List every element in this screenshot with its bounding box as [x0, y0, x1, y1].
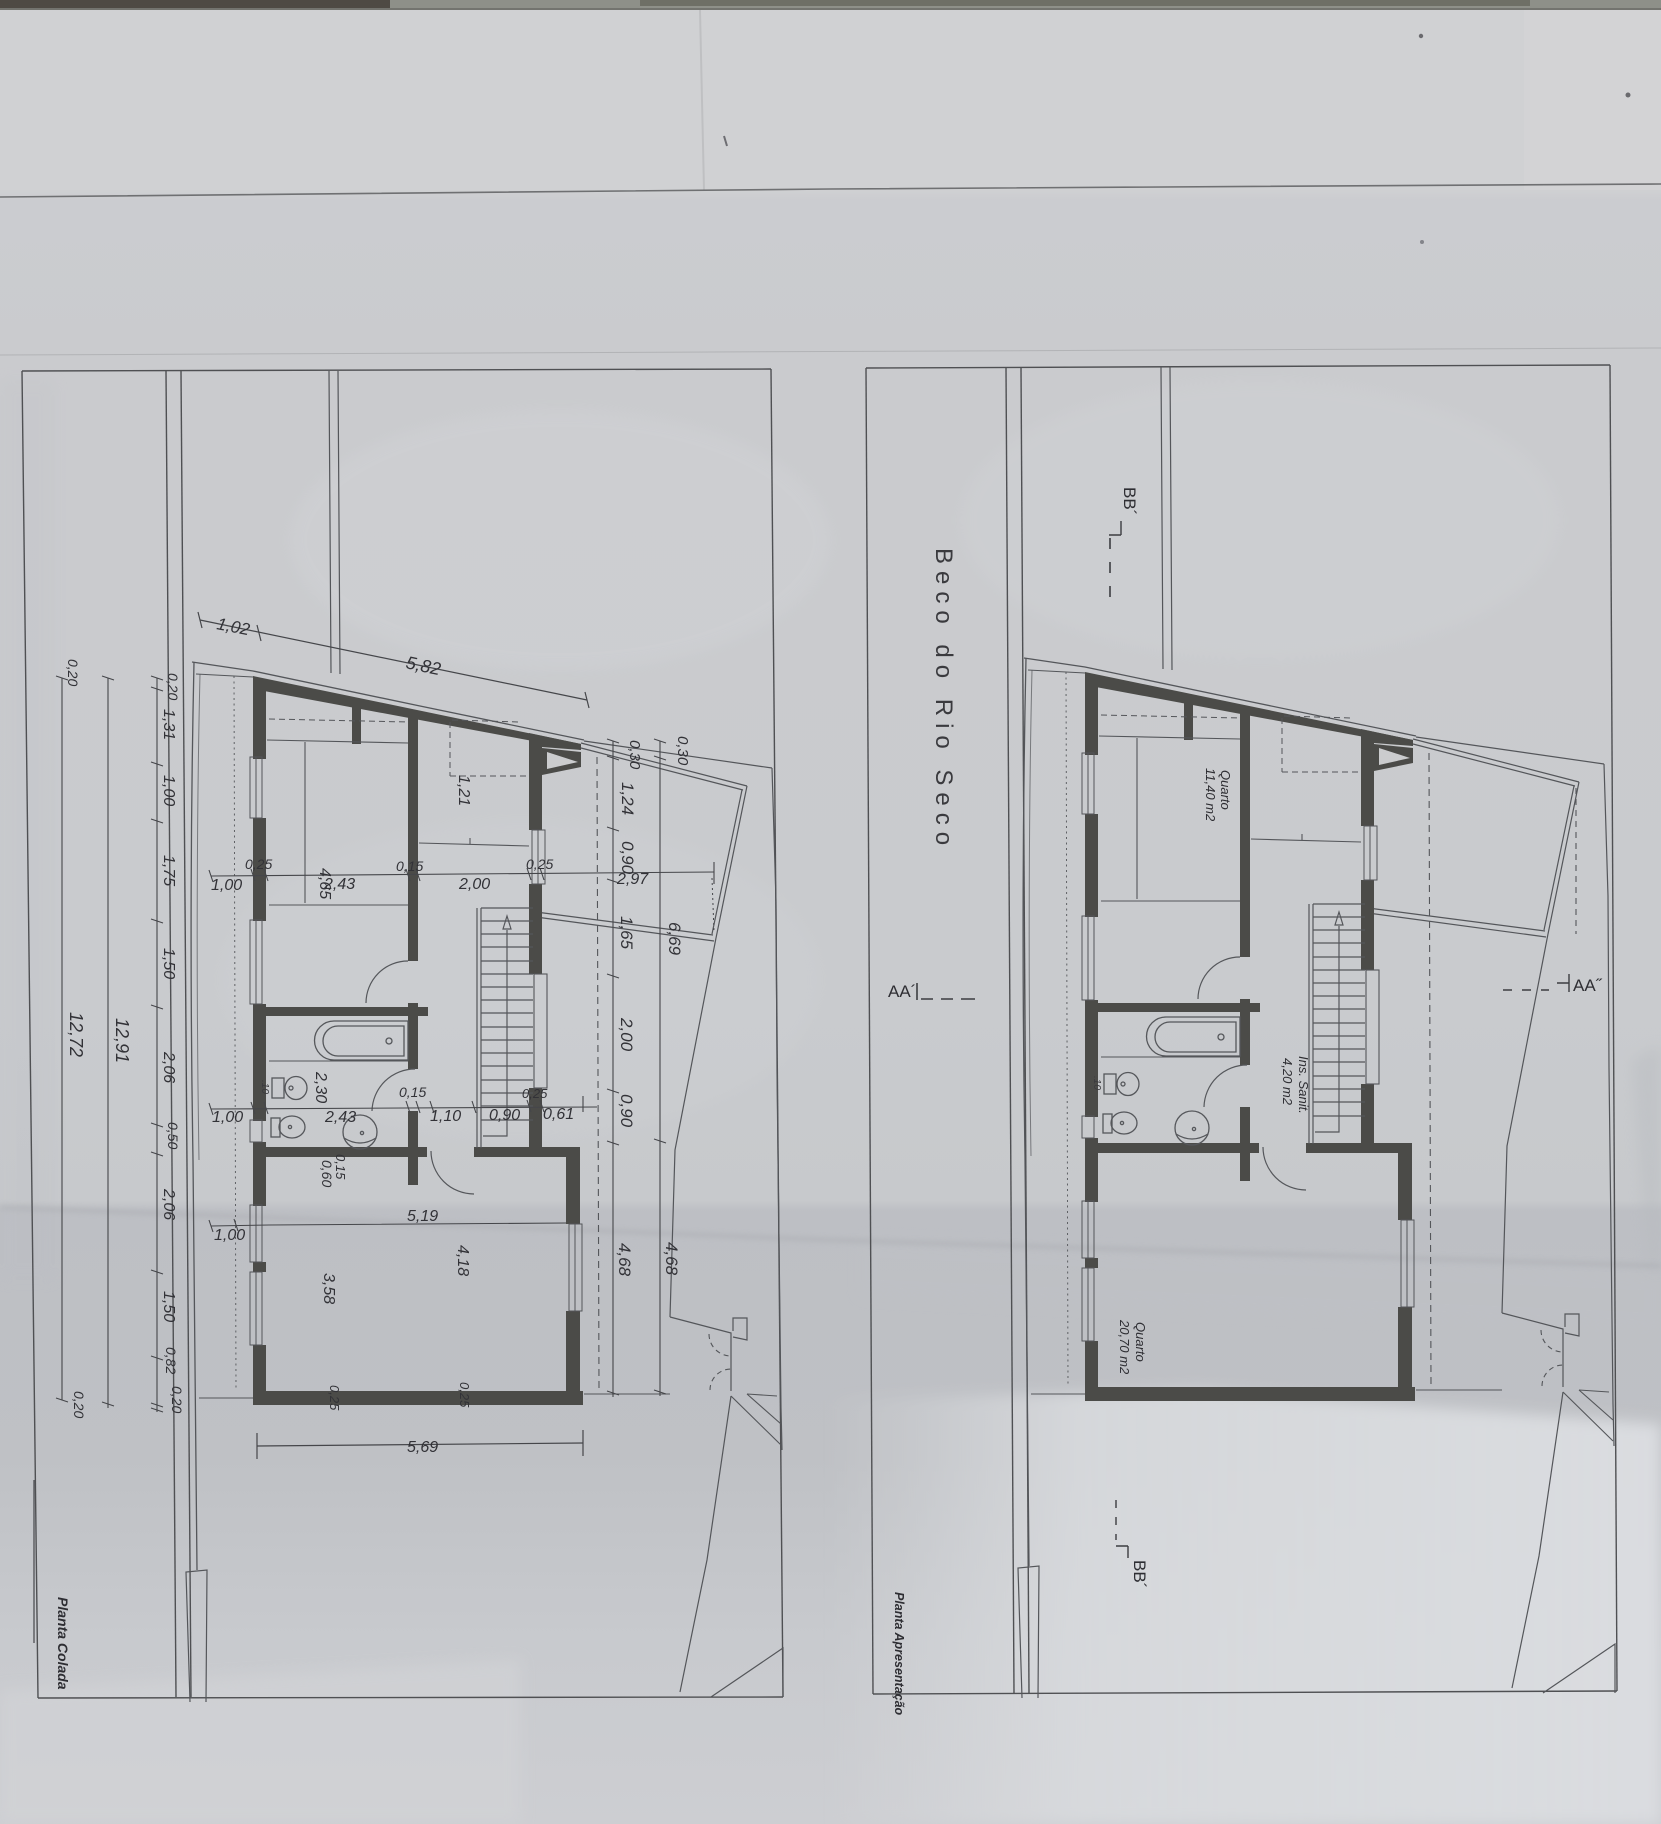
svg-text:0,15: 0,15	[399, 1084, 426, 1100]
svg-text:0,82: 0,82	[163, 1347, 179, 1374]
svg-text:Ins. Sanit.: Ins. Sanit.	[1296, 1056, 1311, 1114]
svg-text:3,58: 3,58	[320, 1273, 337, 1304]
svg-text:5,19: 5,19	[407, 1208, 438, 1225]
svg-text:1,50: 1,50	[160, 948, 177, 979]
svg-text:0,50: 0,50	[165, 1122, 181, 1149]
svg-text:1,24: 1,24	[618, 782, 637, 815]
svg-text:6,69: 6,69	[665, 922, 684, 956]
svg-text:0,61: 0,61	[543, 1106, 574, 1123]
svg-text:0,25: 0,25	[457, 1382, 472, 1408]
svg-text:4,68: 4,68	[662, 1242, 681, 1276]
svg-text:12,91: 12,91	[112, 1018, 132, 1063]
svg-text:2,43: 2,43	[323, 876, 355, 893]
svg-text:Beco do Rio Seco: Beco do Rio Seco	[930, 548, 957, 852]
svg-text:0,20: 0,20	[165, 673, 181, 700]
svg-text:1,50: 1,50	[160, 1291, 177, 1322]
svg-text:4,20 m2: 4,20 m2	[1280, 1058, 1295, 1106]
svg-text:2,00: 2,00	[458, 876, 490, 893]
svg-text:1,00: 1,00	[214, 1227, 245, 1244]
svg-text:0,20: 0,20	[65, 659, 81, 686]
svg-text:BB´: BB´	[1130, 1560, 1149, 1588]
svg-text:BB´: BB´	[1120, 487, 1139, 515]
svg-text:0,30: 0,30	[674, 736, 691, 766]
svg-text:5,69: 5,69	[407, 1439, 438, 1456]
svg-text:2,30: 2,30	[312, 1071, 329, 1103]
svg-text:0,20: 0,20	[169, 1386, 185, 1413]
svg-text:1,31: 1,31	[160, 709, 177, 740]
svg-text:0,25: 0,25	[522, 1086, 548, 1101]
svg-text:Quarto: Quarto	[1218, 770, 1233, 810]
svg-text:20,70 m2: 20,70 m2	[1117, 1319, 1132, 1375]
svg-text:0,90: 0,90	[617, 1094, 636, 1128]
svg-text:0,25: 0,25	[245, 856, 272, 872]
svg-text:0,25: 0,25	[327, 1385, 342, 1411]
svg-text:0,25: 0,25	[526, 856, 553, 872]
svg-text:0,15: 0,15	[333, 1154, 348, 1180]
svg-text:1,65: 1,65	[617, 916, 636, 950]
svg-text:1,00: 1,00	[211, 877, 242, 894]
svg-text:0,90: 0,90	[618, 841, 637, 875]
svg-text:0,20: 0,20	[71, 1391, 87, 1418]
svg-text:0,30: 0,30	[626, 740, 643, 770]
svg-text:Planta Apresentação: Planta Apresentação	[892, 1592, 906, 1716]
svg-text:2,43: 2,43	[324, 1109, 356, 1126]
svg-text:1,10: 1,10	[430, 1108, 461, 1125]
svg-text:0,60: 0,60	[319, 1160, 335, 1187]
svg-text:2,00: 2,00	[617, 1017, 636, 1052]
svg-text:Quarto: Quarto	[1133, 1322, 1148, 1362]
svg-text:4,68: 4,68	[615, 1243, 634, 1277]
svg-text:1,21: 1,21	[455, 775, 472, 806]
svg-text:1,75: 1,75	[160, 855, 177, 886]
svg-text:2,06: 2,06	[160, 1051, 177, 1083]
svg-text:2,06: 2,06	[160, 1188, 177, 1220]
svg-text:1,00: 1,00	[160, 775, 177, 806]
svg-text:AA´: AA´	[888, 982, 916, 1001]
svg-text:0,15: 0,15	[396, 858, 423, 874]
svg-text:12,72: 12,72	[66, 1012, 86, 1057]
svg-text:11,40 m2: 11,40 m2	[1203, 768, 1218, 822]
svg-text:0,90: 0,90	[489, 1107, 520, 1124]
svg-text:1,00: 1,00	[212, 1109, 243, 1126]
svg-text:4,18: 4,18	[454, 1245, 471, 1276]
svg-text:AA˝: AA˝	[1573, 976, 1603, 995]
svg-text:Planta Colada: Planta Colada	[55, 1597, 71, 1690]
